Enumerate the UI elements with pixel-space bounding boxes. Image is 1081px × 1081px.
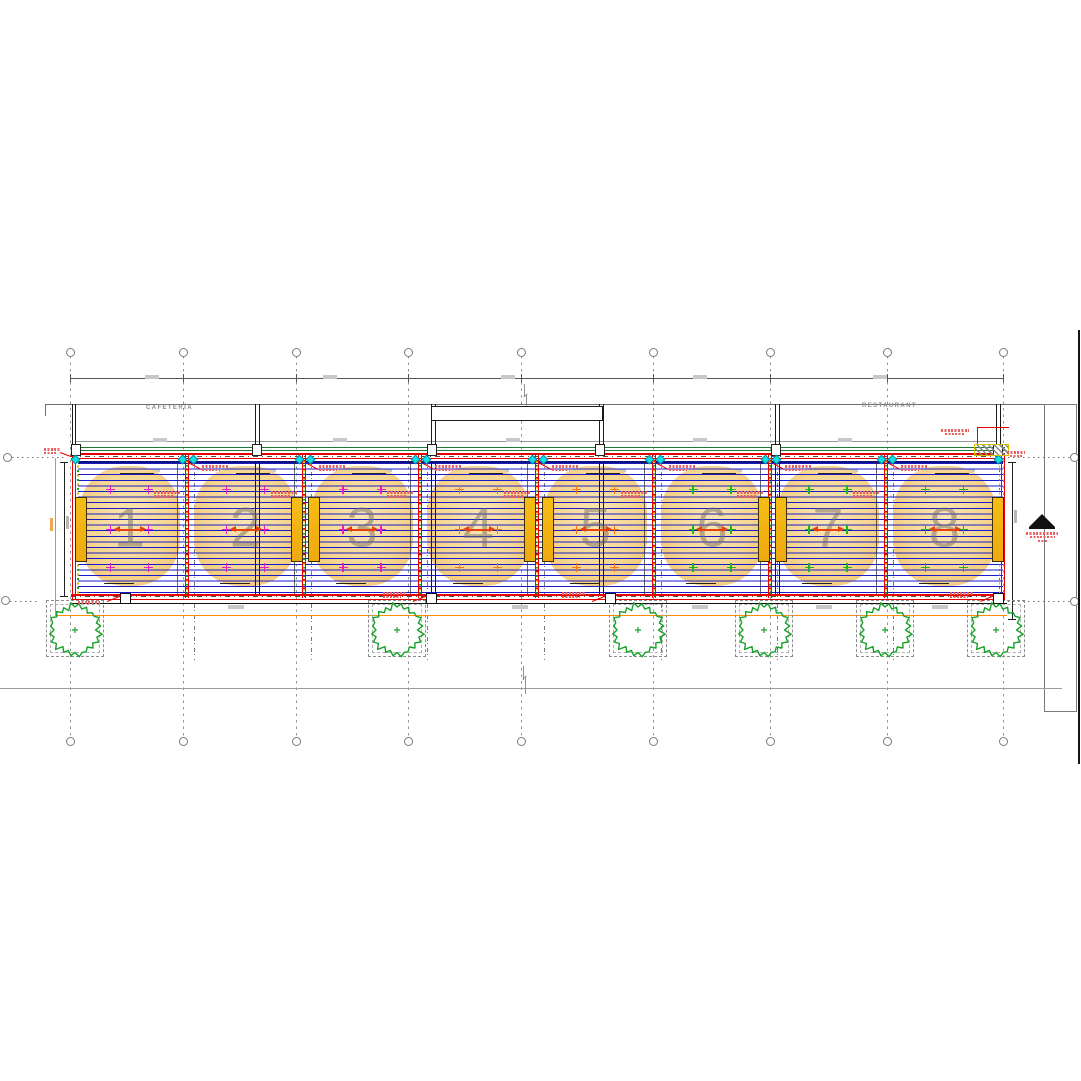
divider-black-line [177, 461, 178, 594]
dim-tick [521, 374, 522, 382]
grid-bubble-bottom [649, 737, 658, 746]
bay-joist-mark [469, 473, 503, 474]
annotation-text-red [901, 465, 927, 468]
grid-leader-dotted [12, 457, 66, 458]
hatched-detail [974, 444, 1009, 456]
plus-marker-bar [459, 563, 461, 572]
span-arrow-head-left [114, 526, 120, 532]
bay-joist-mark [104, 583, 134, 584]
plus-marker-bar [614, 525, 616, 534]
plus-marker-bar [925, 563, 927, 572]
bay-joist-mark [802, 583, 832, 584]
plus-marker-bar [963, 563, 965, 572]
annotation-text-red [154, 495, 174, 498]
divider-black-line [876, 461, 877, 594]
span-arrow-head-left [463, 526, 469, 532]
deck-red-edge-v [72, 453, 73, 600]
bay-joist-mark [818, 473, 852, 474]
plus-marker [455, 485, 464, 494]
grid-bubble-bottom [179, 737, 188, 746]
grid-bubble-bottom [999, 737, 1008, 746]
tree-canopy-icon [856, 601, 914, 659]
plus-marker [222, 563, 231, 572]
annotation-text-red [435, 465, 461, 468]
bay-joist-mark [570, 583, 600, 584]
plus-marker-bar [497, 563, 499, 572]
tree [368, 601, 426, 659]
plus-marker-bar [692, 525, 694, 534]
plus-marker [572, 563, 581, 572]
plus-marker [610, 485, 619, 494]
heater-unit [542, 497, 554, 562]
floor-plan-canvas: CAFETERÍA RESTAURANT 12345678 [0, 0, 1081, 1081]
annotation-text-red [552, 465, 578, 468]
orange-dim-text [50, 518, 53, 531]
dimension-text [501, 375, 515, 379]
plus-marker [843, 563, 852, 572]
divider-tick-column [653, 460, 655, 594]
annotation-text-red [435, 469, 453, 471]
bay-joist-mark [336, 583, 366, 584]
building-left-tick [45, 404, 46, 416]
plus-marker [222, 485, 231, 494]
plus-marker-bar [730, 525, 732, 534]
bay-divider-red [887, 455, 888, 598]
north-triangle-icon [1029, 514, 1055, 527]
plus-marker [260, 563, 269, 572]
plus-marker [805, 485, 814, 494]
plus-marker [727, 563, 736, 572]
plus-marker-bar [380, 525, 382, 534]
plus-marker-bar [110, 525, 112, 534]
annotation-text-red [950, 596, 968, 598]
plus-marker-bar [459, 485, 461, 494]
deck-post-line [435, 461, 436, 594]
annotation-text-red [669, 469, 687, 471]
span-arrow-head-right [838, 526, 844, 532]
post-marker-bottom [426, 593, 437, 604]
span-arrow-head-right [606, 526, 612, 532]
annotation-text-red [945, 433, 965, 435]
vestibule-beam [431, 406, 603, 421]
span-arrow-head-right [489, 526, 495, 532]
green-band-line [72, 450, 1005, 451]
plus-marker-bar [342, 525, 344, 534]
plus-marker [572, 485, 581, 494]
plus-marker-bar [692, 563, 694, 572]
north-triangle-base [1029, 527, 1055, 529]
plus-marker-bar [110, 485, 112, 494]
span-arrow-head-left [696, 526, 702, 532]
plus-marker [610, 563, 619, 572]
plus-marker-bar [148, 525, 150, 534]
annotation-text-red [1007, 451, 1025, 454]
annotation-text-red [1010, 455, 1022, 457]
tree [856, 601, 914, 659]
cafeteria-label: CAFETERÍA [146, 405, 193, 411]
grid-bubble-bottom [404, 737, 413, 746]
annotation-leader [977, 427, 1009, 428]
plus-marker [339, 563, 348, 572]
plus-marker-bar [342, 563, 344, 572]
deck-post-line [431, 461, 432, 594]
dim-tick [887, 374, 888, 382]
plus-marker-bar [576, 563, 578, 572]
plus-marker-bar [497, 525, 499, 534]
span-arrow-head-left [346, 526, 352, 532]
plus-marker-bar [846, 525, 848, 534]
annotation-text-red [202, 465, 228, 468]
heater-unit [524, 497, 536, 562]
plus-marker-bar [148, 563, 150, 572]
annotation-text-red [1030, 536, 1055, 538]
plus-marker-bar [110, 563, 112, 572]
plus-marker [377, 563, 386, 572]
bay-divider-red [538, 455, 539, 598]
span-arrow-head-left [812, 526, 818, 532]
plus-marker-bar [226, 485, 228, 494]
green-band-line [72, 447, 1005, 448]
dimension-text [932, 605, 948, 609]
grid-bubble-top [179, 348, 188, 357]
plus-marker-bar [264, 563, 266, 572]
building-top-line [45, 404, 1077, 405]
grid-bubble-top [292, 348, 301, 357]
annotation-text-red [383, 592, 407, 595]
plus-marker-bar [226, 525, 228, 534]
bay-joist-mark [236, 473, 270, 474]
plus-marker-bar [963, 485, 965, 494]
annotation-text-red [737, 495, 757, 498]
annotation-text-red [319, 465, 345, 468]
divider-tick-column [186, 460, 188, 594]
span-arrow-head-right [372, 526, 378, 532]
annotation-text-red [941, 429, 969, 432]
plus-marker-bar [963, 525, 965, 534]
tree-canopy-icon [368, 601, 426, 659]
plus-marker [493, 485, 502, 494]
annotation-text-red [785, 469, 803, 471]
annotation-text-red [621, 495, 641, 498]
heater-unit [75, 497, 87, 562]
bay-joist-mark [702, 473, 736, 474]
tree-canopy-icon [967, 601, 1025, 659]
grid-bubble-bottom [883, 737, 892, 746]
plus-marker [493, 563, 502, 572]
bay-divider-red [421, 455, 422, 598]
plus-marker [455, 563, 464, 572]
span-arrow-head-right [722, 526, 728, 532]
heater-unit [308, 497, 320, 562]
bay-divider-red [188, 455, 189, 598]
plus-marker-bar [576, 485, 578, 494]
annotation-text-red [387, 491, 414, 494]
annotation-text-red [737, 491, 764, 494]
divider-tick-column [419, 460, 421, 594]
right-heavy-line [1078, 330, 1080, 764]
annotation-text-red [319, 469, 337, 471]
dim-tick [408, 374, 409, 382]
dimension-line-top [70, 378, 1003, 379]
grid-bubble-top [999, 348, 1008, 357]
grid-bubble-top [766, 348, 775, 357]
plus-marker-bar [730, 563, 732, 572]
grid-bubble-side [3, 453, 12, 462]
plus-marker [106, 485, 115, 494]
bay-joist-mark [919, 583, 949, 584]
annotation-text-red [901, 469, 919, 471]
annotation-text-red [669, 465, 695, 468]
orange-dim-v [55, 458, 56, 616]
dimension-text [693, 375, 707, 379]
post-marker-top [252, 444, 262, 456]
plus-marker-bar [846, 563, 848, 572]
dimension-text [693, 438, 707, 442]
tree [609, 601, 667, 659]
post-marker-bottom [605, 593, 616, 604]
plus-marker [377, 485, 386, 494]
divider-tick-column [536, 460, 538, 594]
annotation-text-red [202, 469, 220, 471]
annotation-text-red [154, 491, 181, 494]
grid-bubble-side [1, 596, 10, 605]
left-dim-line [64, 462, 65, 597]
post-marker-bottom [120, 593, 131, 604]
plus-marker-bar [692, 485, 694, 494]
dimension-text [512, 605, 528, 609]
plus-marker-bar [808, 485, 810, 494]
plus-marker-bar [576, 525, 578, 534]
span-arrow-head-left [580, 526, 586, 532]
plus-marker [144, 563, 153, 572]
dim-tick [70, 374, 71, 382]
annotation-leader [977, 427, 978, 444]
plus-marker-bar [614, 563, 616, 572]
bay-joist-mark [453, 583, 483, 584]
left-dim-tick [60, 462, 68, 463]
divider-black-line [410, 461, 411, 594]
plus-marker-bar [497, 485, 499, 494]
right-dim-line [1012, 462, 1013, 620]
plus-marker [921, 485, 930, 494]
grid-bubble-top [517, 348, 526, 357]
break-mark [525, 677, 526, 694]
plus-marker-bar [226, 563, 228, 572]
span-arrow-head-right [256, 526, 262, 532]
dim-tick [770, 374, 771, 382]
restaurant-label: RESTAURANT [862, 403, 917, 409]
dim-tick [296, 374, 297, 382]
annotation-text-red [44, 452, 56, 454]
annotation-text-red [504, 495, 524, 498]
site-boundary-line [0, 688, 1062, 689]
dimension-line-mid [75, 441, 997, 442]
tree-canopy-icon [609, 601, 667, 659]
dimension-text [838, 438, 852, 442]
bay-divider-red [655, 455, 656, 598]
annotation-text-red [1026, 532, 1058, 535]
deck-red-edge-v [1004, 453, 1005, 600]
dim-tick [653, 374, 654, 382]
annotation-text-red [621, 491, 648, 494]
tree [46, 601, 104, 659]
plus-marker [959, 563, 968, 572]
deck-red-edge [71, 599, 1005, 600]
plus-marker-bar [380, 563, 382, 572]
annotation-text-red [562, 592, 586, 595]
annotation-text-red [387, 495, 407, 498]
annotation-text-red [552, 469, 570, 471]
dimension-text [153, 438, 167, 442]
plus-marker [260, 485, 269, 494]
tree-canopy-icon [735, 601, 793, 659]
dimension-text [323, 375, 337, 379]
plus-marker-bar [148, 485, 150, 494]
divider-black-line [644, 461, 645, 594]
post-marker-top [427, 444, 437, 456]
annotation-text-red [383, 596, 401, 598]
grid-bubble-top [649, 348, 658, 357]
grid-bubble-bottom [292, 737, 301, 746]
right-dim-tick [1008, 462, 1016, 463]
plus-marker [689, 563, 698, 572]
annotation-text-red [78, 601, 100, 604]
grid-line [70, 356, 71, 738]
annotation-text-red [271, 495, 291, 498]
grid-bubble-top [404, 348, 413, 357]
grid-bubble-bottom [517, 737, 526, 746]
plus-marker-bar [808, 525, 810, 534]
tree [735, 601, 793, 659]
annotation-text-red [1038, 540, 1047, 542]
span-arrow-head-right [955, 526, 961, 532]
deck-board-lines [78, 463, 1003, 593]
plus-marker-bar [925, 485, 927, 494]
dim-tick [183, 374, 184, 382]
span-arrow-head-left [230, 526, 236, 532]
heater-unit [775, 497, 787, 562]
dimension-text [692, 605, 708, 609]
bay-divider-red [771, 455, 772, 598]
dimension-text [873, 375, 887, 379]
dimension-text [145, 375, 159, 379]
right-structure-rect [1044, 404, 1077, 712]
heater-unit [758, 497, 770, 562]
plus-marker-bar [925, 525, 927, 534]
span-arrow-head-left [929, 526, 935, 532]
dimension-text [506, 438, 520, 442]
divider-tick-column [885, 460, 887, 594]
grid-bubble-bottom [766, 737, 775, 746]
dim-text-rot [66, 516, 69, 529]
left-dim-tick [60, 596, 68, 597]
plus-marker [727, 485, 736, 494]
plus-marker [339, 485, 348, 494]
annotation-text-red [562, 596, 580, 598]
bay-joist-mark [220, 583, 250, 584]
annotation-text-red [271, 491, 298, 494]
plus-marker [921, 563, 930, 572]
bay-divider-red [305, 455, 306, 598]
plus-marker-bar [730, 485, 732, 494]
bay-joist-mark [586, 473, 620, 474]
annotation-text-red [785, 465, 811, 468]
bay-joist-mark [935, 473, 969, 474]
bay-joist-mark [352, 473, 386, 474]
heater-unit [291, 497, 303, 562]
annotation-text-red [950, 592, 974, 595]
dimension-text [333, 438, 347, 442]
plus-marker-bar [846, 485, 848, 494]
bay-joist-mark [120, 473, 154, 474]
plus-marker-bar [459, 525, 461, 534]
grid-bubble-top [883, 348, 892, 357]
grid-bubble-top [66, 348, 75, 357]
plus-marker-bar [380, 485, 382, 494]
annotation-text-red [853, 491, 880, 494]
plus-marker-bar [342, 485, 344, 494]
grid-leader-dotted [10, 601, 40, 602]
dim-text-rot [1014, 510, 1017, 523]
plus-marker [689, 485, 698, 494]
annotation-text-red [853, 495, 873, 498]
heater-unit [992, 497, 1004, 562]
plus-marker-bar [264, 485, 266, 494]
post-marker-bottom [993, 593, 1004, 604]
plus-marker-bar [264, 525, 266, 534]
plus-marker [144, 485, 153, 494]
dim-tick [1003, 374, 1004, 382]
plus-marker-bar [614, 485, 616, 494]
bay-joist-mark [686, 583, 716, 584]
grid-bubble-bottom [66, 737, 75, 746]
plus-marker [959, 485, 968, 494]
plus-marker [843, 485, 852, 494]
dimension-text [816, 605, 832, 609]
dimension-text [228, 605, 244, 609]
annotation-text-red [504, 491, 531, 494]
plus-marker [106, 563, 115, 572]
divider-tick-column [303, 460, 305, 594]
plus-marker [805, 563, 814, 572]
tree [967, 601, 1025, 659]
plus-marker-bar [808, 563, 810, 572]
annotation-text-red [44, 448, 60, 451]
span-arrow-head-right [140, 526, 146, 532]
tree-canopy-icon [46, 601, 104, 659]
post-marker-top [595, 444, 605, 456]
